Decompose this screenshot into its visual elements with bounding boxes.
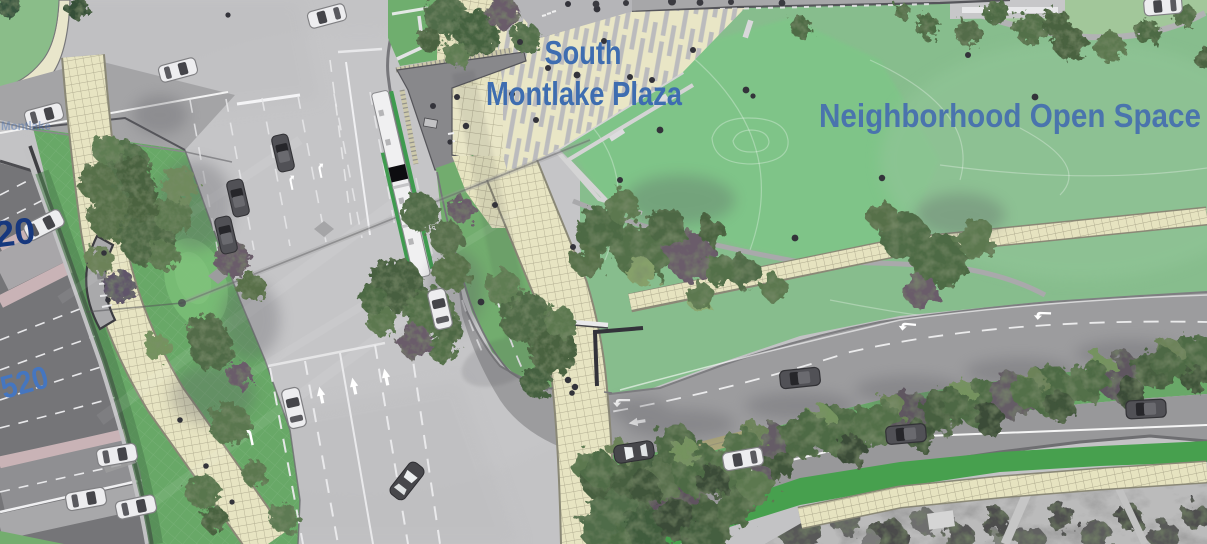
svg-text:520: 520 xyxy=(0,210,37,258)
svg-text:Montlake Plaza: Montlake Plaza xyxy=(486,75,683,112)
svg-text:Montlake: Montlake xyxy=(1,121,51,133)
svg-text:South: South xyxy=(545,34,622,71)
svg-text:Neighborhood Open Space: Neighborhood Open Space xyxy=(819,97,1201,134)
